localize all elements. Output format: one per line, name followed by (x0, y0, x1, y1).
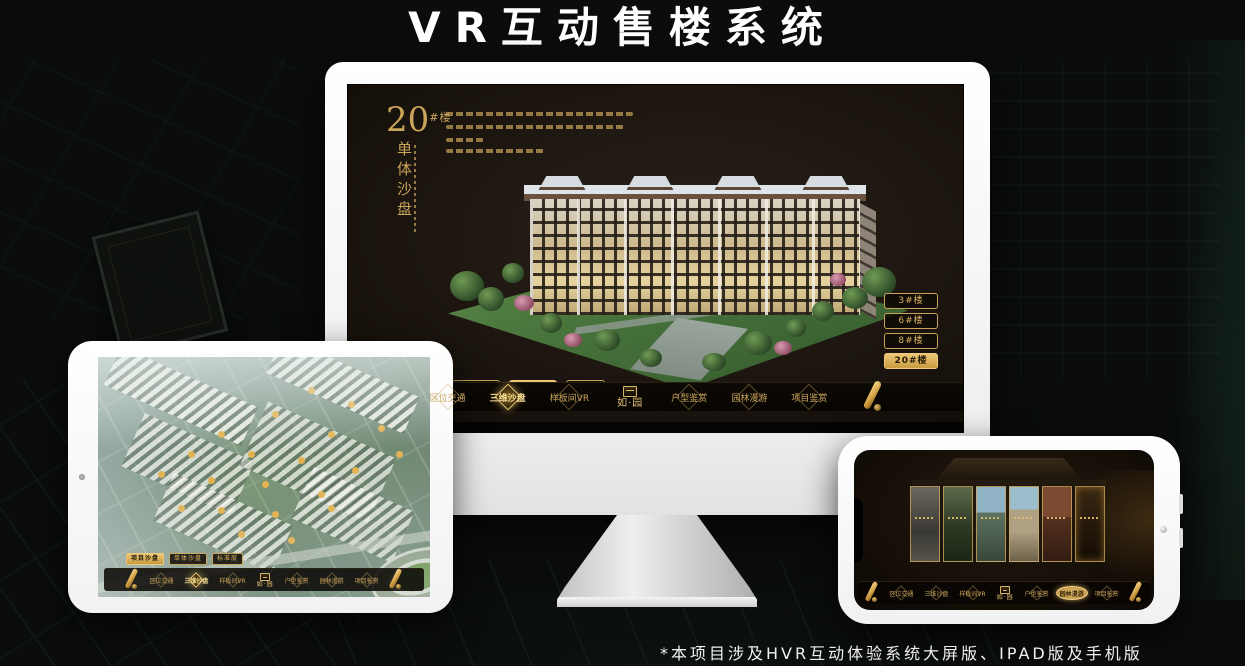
gallery-card[interactable] (1075, 486, 1105, 562)
building-selector: 3#楼 6#楼 8#楼 20#楼 (884, 293, 938, 369)
ruyuan-logo: 如·园 (997, 586, 1014, 601)
scene-gallery (910, 486, 1105, 562)
building-button-8[interactable]: 8#楼 (884, 333, 938, 349)
phone-side-button (1179, 528, 1183, 548)
building-number: 20 (386, 100, 429, 140)
tree (702, 353, 726, 371)
tab-single-sandbox[interactable]: 单体沙盘 (169, 553, 207, 565)
scroll-menu-icon[interactable] (1130, 581, 1142, 605)
building-heading: 20#楼 (386, 103, 451, 137)
nav-showroom-vr[interactable]: 样板间VR (959, 589, 985, 598)
tree (744, 331, 772, 355)
tree (478, 287, 504, 311)
tree (812, 301, 834, 321)
scroll-menu-icon[interactable] (126, 568, 138, 592)
nav-floorplan-view[interactable]: 户型鉴赏 (285, 576, 309, 585)
tree (640, 349, 662, 367)
main-navbar: 区位交通 三维沙盘 样板间VR 如·园 户型鉴赏 园林漫游 项目鉴赏 (104, 568, 424, 591)
bg-map-grid-topleft (0, 60, 300, 320)
gallery-card[interactable] (943, 486, 973, 562)
bg-picture-frame (92, 211, 229, 358)
gallery-card[interactable] (976, 486, 1006, 562)
nav-garden-roam[interactable]: 园林漫游 (731, 391, 767, 404)
ruyuan-logo-icon (623, 386, 637, 397)
nav-location-traffic[interactable]: 区位交通 (889, 589, 913, 598)
tablet-screen: 项目沙盘 单体沙盘 标准层 区位交通 三维沙盘 样板间VR 如·园 户型鉴赏 园… (98, 357, 430, 597)
camera-icon (1160, 526, 1167, 533)
tree (842, 287, 868, 309)
tab-project-sandbox[interactable]: 项目沙盘 (126, 553, 164, 565)
model-roof-gable (534, 176, 590, 190)
tab-standard-floor[interactable]: 标准层 (212, 553, 243, 565)
model-facade-windows (530, 199, 860, 315)
bg-city-blocks (980, 60, 1220, 380)
phone-device: 区位交通 三维沙盘 样板间VR 如·园 户型鉴赏 园林漫游 项目鉴赏 (838, 436, 1180, 624)
gallery-card[interactable] (1042, 486, 1072, 562)
nav-showroom-vr[interactable]: 样板间VR (550, 391, 589, 404)
model-roof-gable (710, 176, 766, 190)
nav-floorplan-view[interactable]: 户型鉴赏 (1025, 589, 1049, 598)
vertical-caption-decor (414, 145, 416, 233)
intro-text-line (446, 125, 624, 129)
footnote: *本项目涉及HVR互动体验系统大屏版、IPAD版及手机版 (660, 640, 1245, 664)
tablet-device: 项目沙盘 单体沙盘 标准层 区位交通 三维沙盘 样板间VR 如·园 户型鉴赏 园… (68, 341, 453, 613)
ruyuan-logo-icon (260, 573, 270, 581)
building-button-6[interactable]: 6#楼 (884, 313, 938, 329)
building-3d-model[interactable] (444, 163, 914, 393)
gallery-card[interactable] (910, 486, 940, 562)
building-button-3[interactable]: 3#楼 (884, 293, 938, 309)
gallery-card[interactable] (1009, 486, 1039, 562)
phone-notch (854, 498, 863, 562)
ruyuan-logo: 如·园 (257, 573, 274, 588)
intro-text-line (446, 149, 544, 153)
nav-location-traffic[interactable]: 区位交通 (430, 391, 466, 404)
nav-location-traffic[interactable]: 区位交通 (149, 576, 173, 585)
flower-tree (774, 341, 792, 355)
intro-text-line (446, 112, 633, 116)
tree (786, 319, 806, 337)
model-roof-gable (798, 176, 854, 190)
poster: VR互动售楼系统 20#楼 单体沙盘 (0, 0, 1245, 666)
scroll-menu-icon[interactable] (866, 581, 878, 605)
scroll-menu-icon[interactable] (865, 380, 881, 414)
building-subtitle-vertical: 单体沙盘 (394, 141, 415, 221)
phone-screen: 区位交通 三维沙盘 样板间VR 如·园 户型鉴赏 园林漫游 项目鉴赏 (854, 450, 1154, 610)
nav-3d-sandbox[interactable]: 三维沙盘 (924, 589, 948, 598)
ruyuan-logo-icon (1000, 586, 1010, 594)
flower-tree (830, 273, 846, 286)
intro-text-line (446, 138, 484, 142)
model-building (530, 185, 860, 315)
tree (540, 313, 562, 333)
ruyuan-logo: 如·园 (617, 386, 643, 409)
phone-side-button (1179, 494, 1183, 514)
building-button-20[interactable]: 20#楼 (884, 353, 938, 369)
camera-icon (79, 474, 85, 480)
flower-tree (514, 295, 534, 311)
monitor-stand (557, 515, 757, 607)
nav-3d-sandbox[interactable]: 三维沙盘 (184, 576, 208, 585)
nav-3d-sandbox[interactable]: 三维沙盘 (490, 391, 526, 404)
nav-garden-roam[interactable]: 园林漫游 (1060, 589, 1084, 598)
nav-project-view[interactable]: 项目鉴赏 (791, 391, 827, 404)
nav-showroom-vr[interactable]: 样板间VR (219, 576, 245, 585)
tree (502, 263, 524, 283)
flower-tree (564, 333, 582, 347)
tree (594, 329, 620, 351)
model-roof-gable (622, 176, 678, 190)
sandbox-subtabs: 项目沙盘 单体沙盘 标准层 (126, 553, 243, 565)
scroll-menu-icon[interactable] (390, 568, 402, 592)
page-title: VR互动售楼系统 (0, 0, 1245, 56)
nav-project-view[interactable]: 项目鉴赏 (355, 576, 379, 585)
nav-project-view[interactable]: 项目鉴赏 (1095, 589, 1119, 598)
nav-garden-roam[interactable]: 园林漫游 (320, 576, 344, 585)
main-navbar: 区位交通 三维沙盘 样板间VR 如·园 户型鉴赏 园林漫游 项目鉴赏 (858, 581, 1150, 604)
nav-floorplan-view[interactable]: 户型鉴赏 (671, 391, 707, 404)
